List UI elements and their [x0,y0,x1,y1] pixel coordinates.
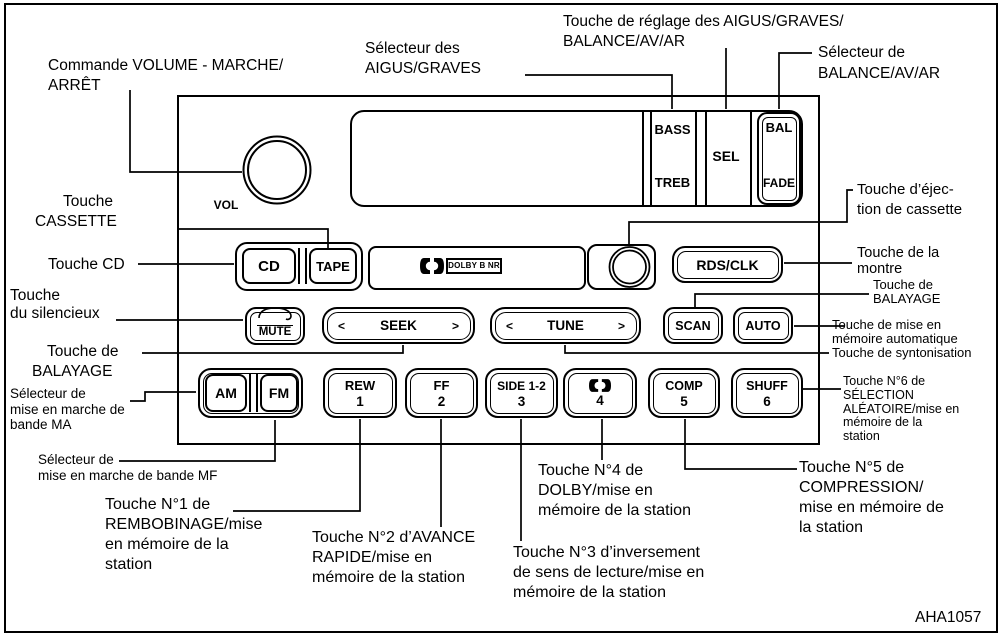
callout-bal-fade-selector: Sélecteur deBALANCE/AV/AR [818,42,940,84]
fade-label: FADE [757,176,801,190]
callout-am: Sélecteur demise en marche debande MA [10,386,125,433]
cd-button: CD [242,248,296,284]
auto-button: AUTO [733,307,793,344]
preset-5-label: 5 [680,394,688,409]
preset-6-label: 6 [763,394,771,409]
callout-preset-1: Touche N°1 deREMBOBINAGE/miseen mémoire … [105,495,262,575]
callout-preset-3: Touche N°3 d’inversementde sens de lectu… [513,543,704,603]
preset-button-2-ff: FF 2 [405,368,478,418]
callout-volume: Commande VOLUME - MARCHE/ARRÊT [48,56,283,96]
balance-label: BAL [757,120,801,135]
callout-scan: Touche deBALAYAGE [873,278,940,306]
callout-preset-4: Touche N°4 deDOLBY/mise enmémoire de la … [538,461,691,521]
radio-diagram: VOL BASS TREB SEL BAL FADE CD TAPE DOLBY… [0,0,1004,635]
seek-left-arrow: < [338,319,345,333]
side-label: SIDE 1-2 [497,378,546,394]
comp-label: COMP [665,378,703,394]
preset-2-label: 2 [438,394,446,409]
tune-left-arrow: < [506,319,513,333]
callout-auto-memory: Touche de mise enmémoire automatique [832,318,958,346]
shuff-label: SHUFF [746,378,788,394]
figure-code: AHA1057 [915,608,981,628]
callout-cassette: ToucheCASSETTE [35,192,117,232]
callout-clock: Touche de lamontre [857,245,939,277]
callout-eject: Touche d’éjec-tion de cassette [857,180,962,220]
callout-fm: Sélecteur demise en marche de bande MF [38,452,217,483]
preset-button-3-side: SIDE 1-2 3 [485,368,558,418]
callout-preset-2: Touche N°2 d’AVANCERAPIDE/mise enmémoire… [312,528,475,588]
preset-button-4-dolby: 4 [563,368,637,418]
rew-label: REW [345,378,375,394]
scan-button: SCAN [663,307,723,344]
preset-4-label: 4 [596,393,604,408]
callout-bass-treb-selector: Sélecteur desAIGUS/GRAVES [365,39,481,79]
preset-button-6-shuff: SHUFF 6 [731,368,803,418]
rds-clk-button: RDS/CLK [672,246,783,283]
callout-sel-adjust: Touche de réglage des AIGUS/GRAVES/BALAN… [563,12,844,52]
treble-label: TREB [646,175,699,190]
tune-right-arrow: > [618,319,625,333]
seek-label: SEEK [380,318,417,333]
seek-right-arrow: > [452,319,459,333]
preset-button-5-comp: COMP 5 [648,368,720,418]
preset-3-label: 3 [518,394,526,409]
callout-tune: Touche de syntonisation [832,346,971,360]
mute-label: MUTE [257,325,294,338]
am-fm-divider [249,374,258,412]
callout-preset-5: Touche N°5 deCOMPRESSION/mise en mémoire… [799,458,944,538]
vol-label: VOL [204,198,248,212]
dolby-nr-badge: DOLBY B NR [446,258,502,274]
ff-label: FF [434,378,450,394]
callout-seek: Touche deBALAYAGE [32,342,119,382]
callout-cd: Touche CD [48,255,125,275]
dolby-icon [589,379,611,392]
cd-tape-divider [298,248,307,284]
display-divider [642,112,644,205]
tape-button: TAPE [309,248,357,284]
seek-button: < SEEK > [322,307,475,344]
preset-1-label: 1 [356,394,364,409]
fm-button: FM [260,374,298,412]
callout-mute: Touchedu silencieux [10,287,100,323]
mute-button: MUTE [245,307,305,345]
eject-button: EJ [612,260,647,274]
preset-button-1-rew: REW 1 [323,368,397,418]
callout-preset-6: Touche N°6 deSÉLECTIONALÉATOIRE/mise enm… [843,375,959,444]
sel-label: SEL [701,148,751,164]
tune-button: < TUNE > [490,307,641,344]
bass-label: BASS [646,122,699,137]
tune-label: TUNE [547,318,584,333]
am-button: AM [205,374,247,412]
